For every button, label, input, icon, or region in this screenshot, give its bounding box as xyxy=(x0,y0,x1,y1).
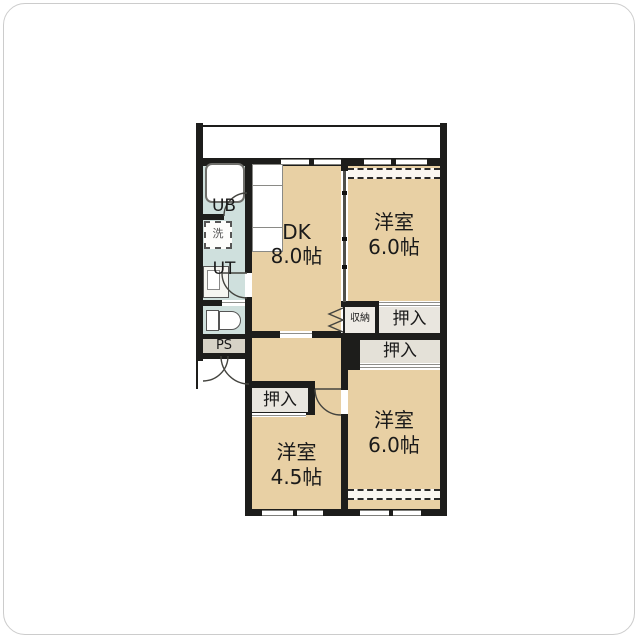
label-closet-sw: 押入 xyxy=(252,391,308,410)
entrance-door-arc-right xyxy=(221,356,249,384)
label-bedroom-ne-name: 洋室 xyxy=(348,211,440,233)
label-bedroom-se-name: 洋室 xyxy=(348,409,440,431)
label-laundry: 洗 xyxy=(204,228,232,240)
label-bedroom-ne-size: 6.0帖 xyxy=(348,236,440,258)
label-utility: UT xyxy=(203,260,245,279)
label-unit-bath: UB xyxy=(203,197,245,216)
label-bedroom-sw-name: 洋室 xyxy=(252,441,341,463)
door-swing-arcs xyxy=(0,0,640,640)
label-closet-ne: 押入 xyxy=(379,310,440,329)
label-closet-se: 押入 xyxy=(360,342,440,361)
label-dk-name: DK xyxy=(252,221,341,243)
floor-plan-image: UB 洗 UT PS DK 8.0帖 洋室 6.0帖 収納 押入 押入 押入 洋… xyxy=(0,0,640,640)
label-bedroom-sw-size: 4.5帖 xyxy=(252,466,341,488)
label-dk-size: 8.0帖 xyxy=(252,245,341,267)
bedroom-se-door-arc xyxy=(315,389,341,415)
label-storage: 収納 xyxy=(345,313,375,324)
label-bedroom-se-size: 6.0帖 xyxy=(348,434,440,456)
label-pipe-space: PS xyxy=(203,339,245,353)
storage-folding-door xyxy=(329,308,343,332)
